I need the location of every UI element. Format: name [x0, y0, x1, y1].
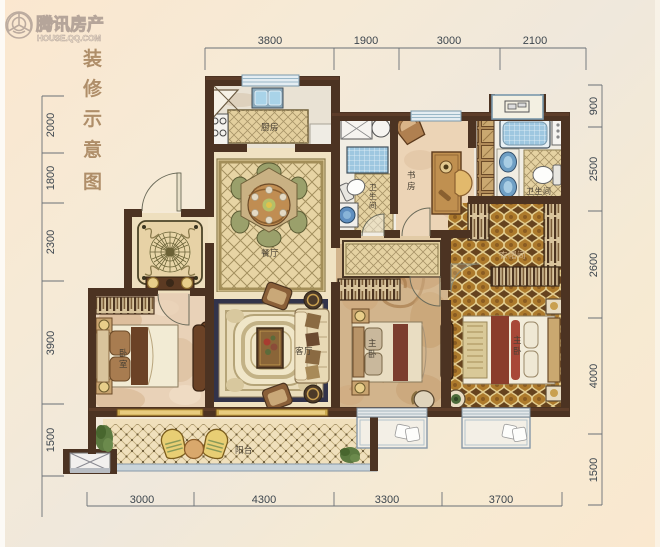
svg-text:3800: 3800	[258, 35, 282, 47]
svg-text:2500: 2500	[588, 157, 600, 181]
svg-text:3000: 3000	[437, 35, 461, 47]
svg-text:HOUSE.QQ.COM: HOUSE.QQ.COM	[37, 34, 101, 43]
svg-text:1500: 1500	[588, 458, 600, 482]
svg-text:1500: 1500	[45, 428, 57, 452]
svg-text:900: 900	[588, 97, 600, 115]
svg-text:图: 图	[83, 171, 102, 193]
svg-text:衣帽间: 衣帽间	[499, 250, 526, 260]
svg-text:装: 装	[82, 47, 102, 70]
svg-text:主卧: 主卧	[513, 335, 522, 356]
svg-text:卫生间: 卫生间	[369, 183, 377, 210]
svg-text:主卧: 主卧	[368, 338, 377, 359]
svg-text:3900: 3900	[45, 331, 57, 355]
svg-text:客厅: 客厅	[295, 346, 313, 356]
svg-text:3700: 3700	[489, 494, 513, 506]
svg-text:厨房: 厨房	[261, 122, 279, 132]
svg-text:1900: 1900	[354, 35, 378, 47]
svg-text:卧室: 卧室	[119, 348, 128, 369]
svg-text:餐厅: 餐厅	[261, 248, 279, 258]
svg-text:1800: 1800	[45, 166, 57, 190]
svg-text:阳台: 阳台	[235, 445, 253, 455]
svg-text:意: 意	[83, 138, 102, 161]
svg-text:4300: 4300	[252, 494, 276, 506]
svg-text:4000: 4000	[588, 364, 600, 388]
svg-text:示: 示	[83, 109, 102, 130]
svg-text:2100: 2100	[523, 35, 547, 47]
svg-text:卫生间: 卫生间	[526, 186, 552, 196]
svg-text:3000: 3000	[130, 494, 154, 506]
svg-text:2000: 2000	[45, 113, 57, 137]
svg-text:书房: 书房	[407, 170, 416, 191]
svg-text:2300: 2300	[45, 230, 57, 254]
svg-text:2600: 2600	[588, 253, 600, 277]
svg-text:修: 修	[82, 77, 103, 100]
svg-text:3300: 3300	[375, 494, 399, 506]
svg-text:腾讯房产: 腾讯房产	[36, 14, 104, 34]
